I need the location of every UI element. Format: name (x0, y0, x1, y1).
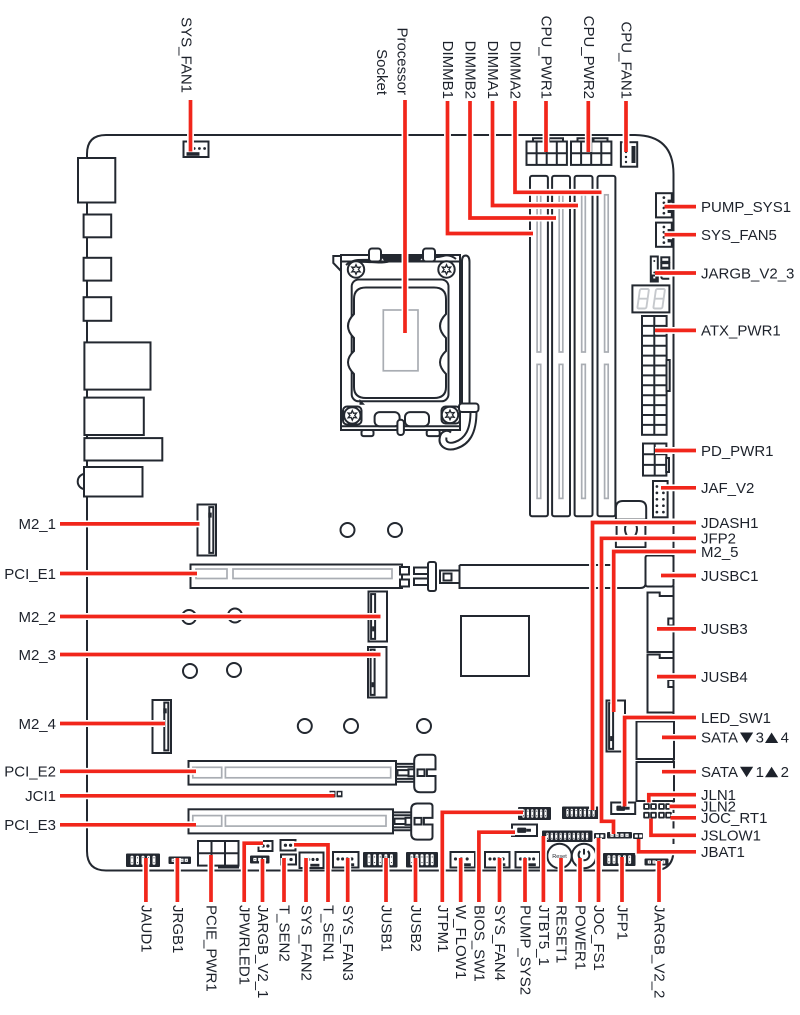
svg-text:JTPM1: JTPM1 (434, 905, 451, 953)
svg-text:PUMP_SYS1: PUMP_SYS1 (701, 199, 791, 216)
svg-text:CPU_PWR1: CPU_PWR1 (538, 16, 555, 99)
svg-text:JTBT5_1: JTBT5_1 (535, 905, 552, 966)
svg-text:M2_4: M2_4 (18, 716, 56, 733)
svg-text:JUSB2: JUSB2 (407, 905, 424, 952)
svg-text:DIMMB1: DIMMB1 (439, 41, 456, 99)
svg-text:JUSB4: JUSB4 (701, 669, 748, 686)
svg-text:M2_5: M2_5 (701, 544, 739, 561)
svg-text:SYS_FAN3: SYS_FAN3 (339, 905, 356, 981)
svg-text:JARGB_V2_3: JARGB_V2_3 (701, 265, 794, 282)
svg-text:PCI_E3: PCI_E3 (4, 817, 56, 834)
svg-text:CPU_FAN1: CPU_FAN1 (618, 21, 635, 99)
svg-text:M2_1: M2_1 (18, 516, 56, 533)
svg-text:JBAT1: JBAT1 (701, 844, 745, 861)
svg-text:M2_2: M2_2 (18, 609, 56, 626)
svg-text:JAF_V2: JAF_V2 (701, 480, 754, 497)
svg-text:JOC_RT1: JOC_RT1 (701, 810, 767, 827)
svg-text:CPU_PWR2: CPU_PWR2 (580, 16, 597, 99)
svg-text:Processor: Processor (394, 27, 411, 95)
svg-text:JUSBC1: JUSBC1 (701, 568, 759, 585)
svg-text:W_FLOW1: W_FLOW1 (452, 905, 469, 979)
svg-text:PD_PWR1: PD_PWR1 (701, 443, 774, 460)
svg-text:JUSB3: JUSB3 (701, 621, 748, 638)
svg-text:M2_3: M2_3 (18, 647, 56, 664)
svg-text:JOC_FS1: JOC_FS1 (590, 905, 607, 971)
svg-text:T_SEN2: T_SEN2 (276, 905, 293, 962)
svg-text:SYS_FAN5: SYS_FAN5 (701, 227, 777, 244)
svg-text:SYS_FAN4: SYS_FAN4 (491, 905, 508, 981)
svg-text:RESET1: RESET1 (553, 905, 570, 963)
svg-text:LED_SW1: LED_SW1 (701, 710, 771, 727)
svg-text:DIMMA2: DIMMA2 (507, 41, 524, 99)
svg-text:3: 3 (756, 730, 764, 747)
svg-text:1: 1 (756, 764, 764, 781)
svg-text:JRGB1: JRGB1 (169, 905, 186, 953)
svg-text:SATA: SATA (701, 730, 738, 747)
svg-text:SYS_FAN1: SYS_FAN1 (178, 17, 195, 93)
svg-text:JSLOW1: JSLOW1 (701, 828, 761, 845)
svg-text:JAUD1: JAUD1 (137, 905, 154, 953)
svg-text:POWER1: POWER1 (572, 905, 589, 970)
svg-text:SYS_FAN2: SYS_FAN2 (298, 905, 315, 981)
svg-text:ATX_PWR1: ATX_PWR1 (701, 323, 781, 340)
svg-text:PUMP_SYS2: PUMP_SYS2 (517, 905, 534, 995)
svg-text:SATA: SATA (701, 764, 738, 781)
svg-text:PCI_E1: PCI_E1 (4, 566, 56, 583)
svg-text:2: 2 (781, 764, 789, 781)
svg-text:JARGB_V2_2: JARGB_V2_2 (651, 905, 668, 998)
svg-text:PCI_E2: PCI_E2 (4, 764, 56, 781)
svg-text:JCI1: JCI1 (25, 788, 56, 805)
svg-text:BIOS_SW1: BIOS_SW1 (470, 905, 487, 982)
svg-text:Socket: Socket (373, 49, 390, 96)
svg-text:JARGB_V2_1: JARGB_V2_1 (254, 905, 271, 998)
svg-text:4: 4 (781, 730, 789, 747)
svg-text:JUSB1: JUSB1 (378, 905, 395, 952)
svg-text:DIMMA1: DIMMA1 (484, 41, 501, 99)
svg-text:T_SEN1: T_SEN1 (320, 905, 337, 962)
svg-text:PCIE_PWR1: PCIE_PWR1 (203, 905, 220, 992)
svg-text:JFP1: JFP1 (614, 905, 631, 940)
svg-text:JPWRLED1: JPWRLED1 (236, 905, 253, 985)
svg-text:Reset: Reset (552, 854, 567, 860)
svg-text:JDASH1: JDASH1 (701, 515, 759, 532)
svg-text:DIMMB2: DIMMB2 (462, 41, 479, 99)
